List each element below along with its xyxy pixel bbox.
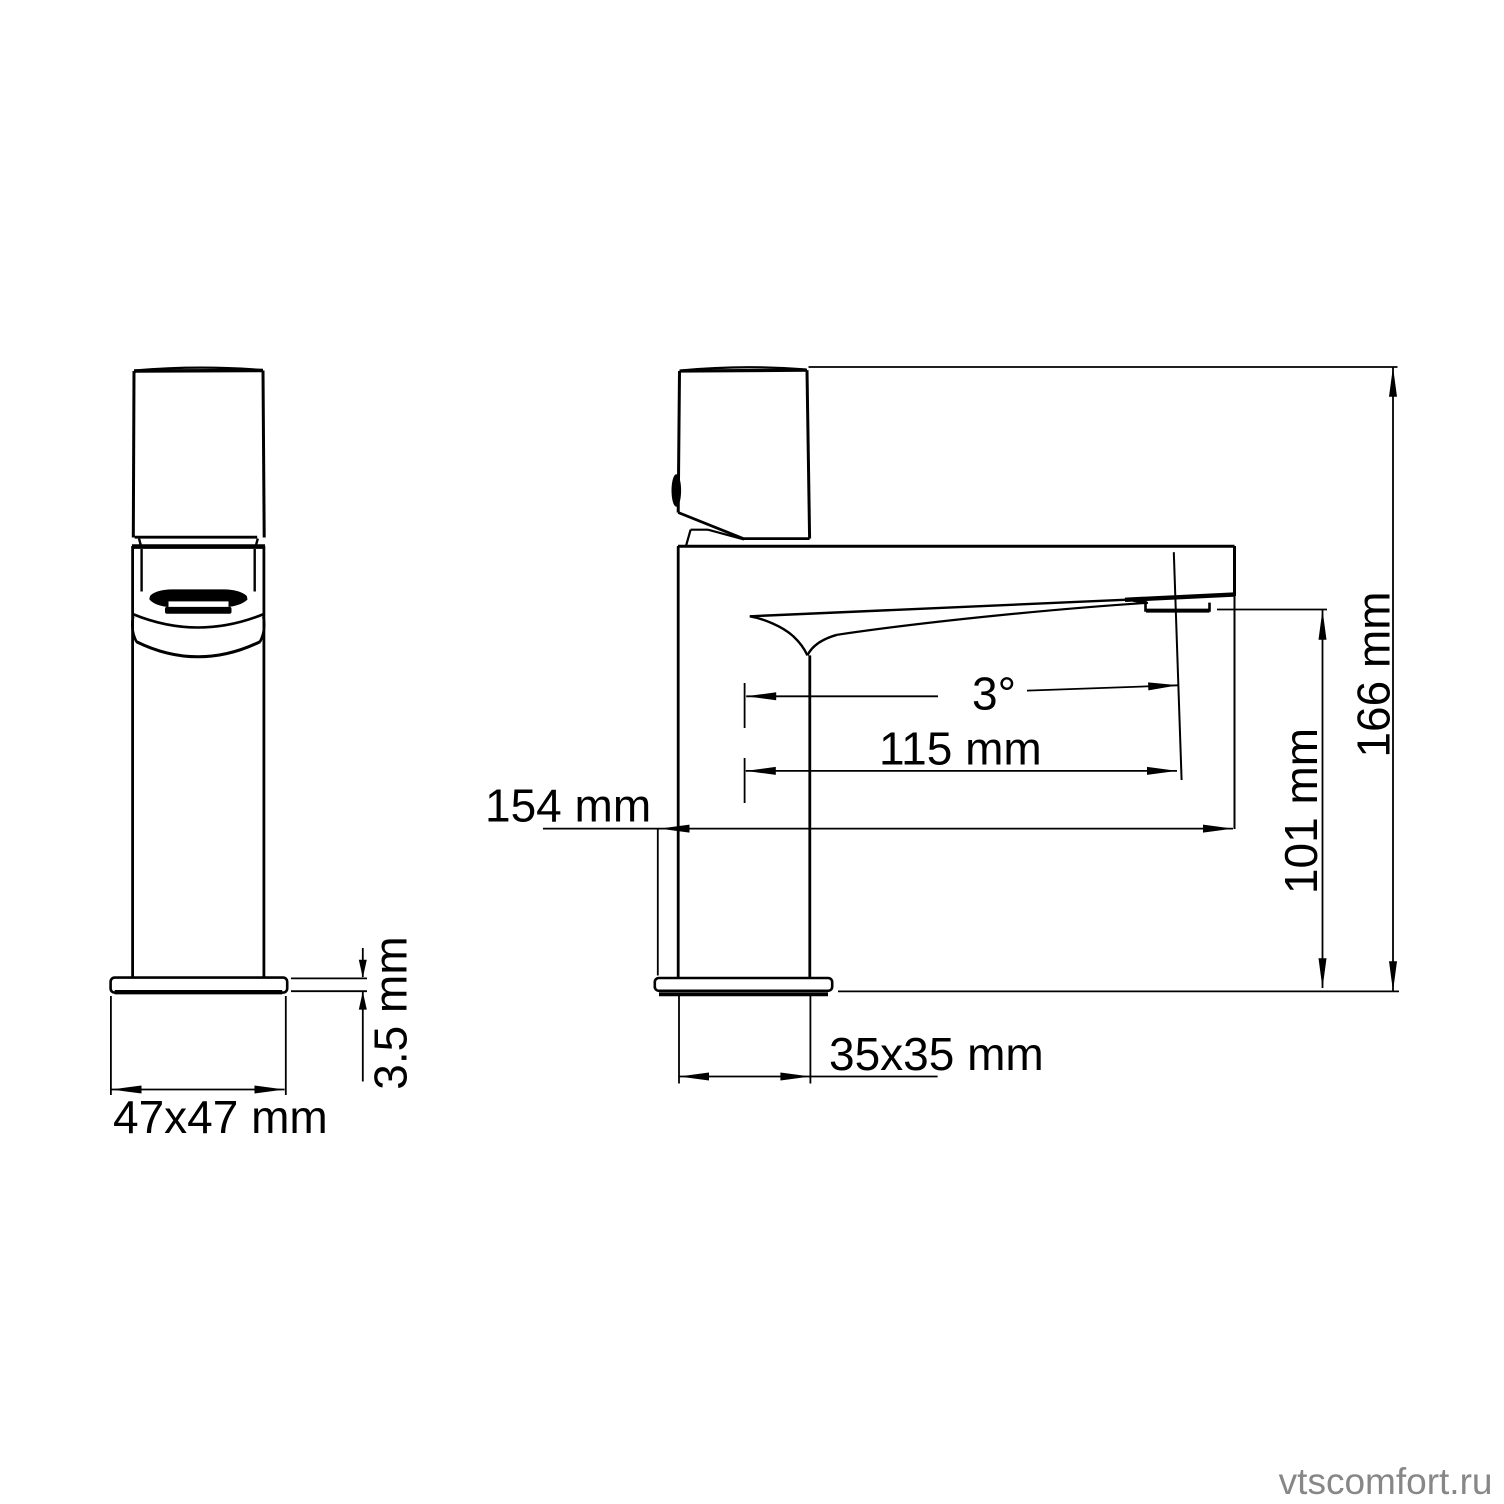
svg-text:154 mm: 154 mm — [485, 780, 651, 832]
svg-text:3.5 mm: 3.5 mm — [365, 936, 417, 1089]
svg-text:166 mm: 166 mm — [1348, 591, 1400, 757]
svg-text:115 mm: 115 mm — [879, 723, 1042, 775]
svg-text:101 mm: 101 mm — [1275, 728, 1327, 894]
svg-text:3°: 3° — [972, 668, 1016, 720]
svg-text:vtscomfort.ru: vtscomfort.ru — [1279, 1461, 1493, 1502]
svg-text:35x35 mm: 35x35 mm — [829, 1028, 1044, 1080]
svg-text:47x47 mm: 47x47 mm — [113, 1091, 328, 1143]
